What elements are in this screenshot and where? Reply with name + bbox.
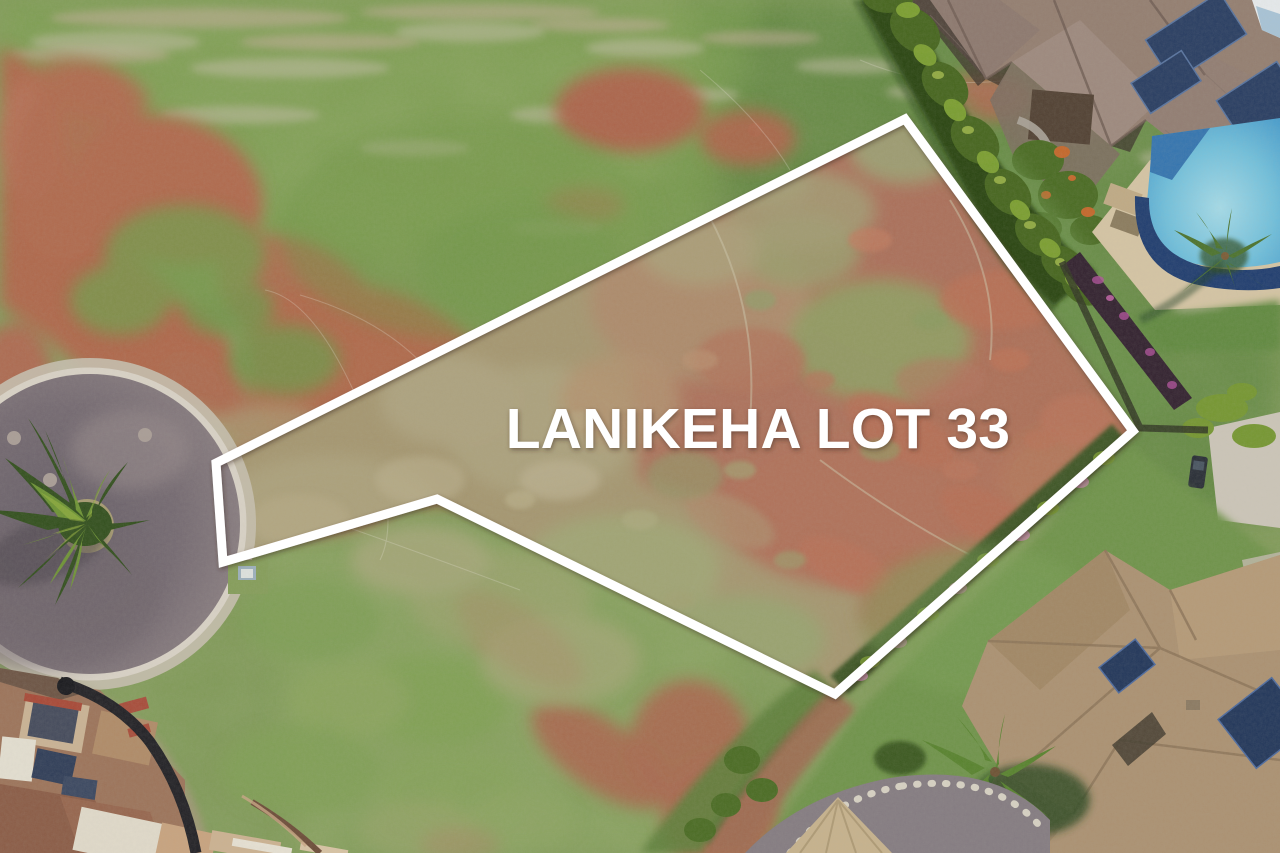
svg-text:LANIKEHA LOT 33: LANIKEHA LOT 33 (506, 397, 1010, 461)
